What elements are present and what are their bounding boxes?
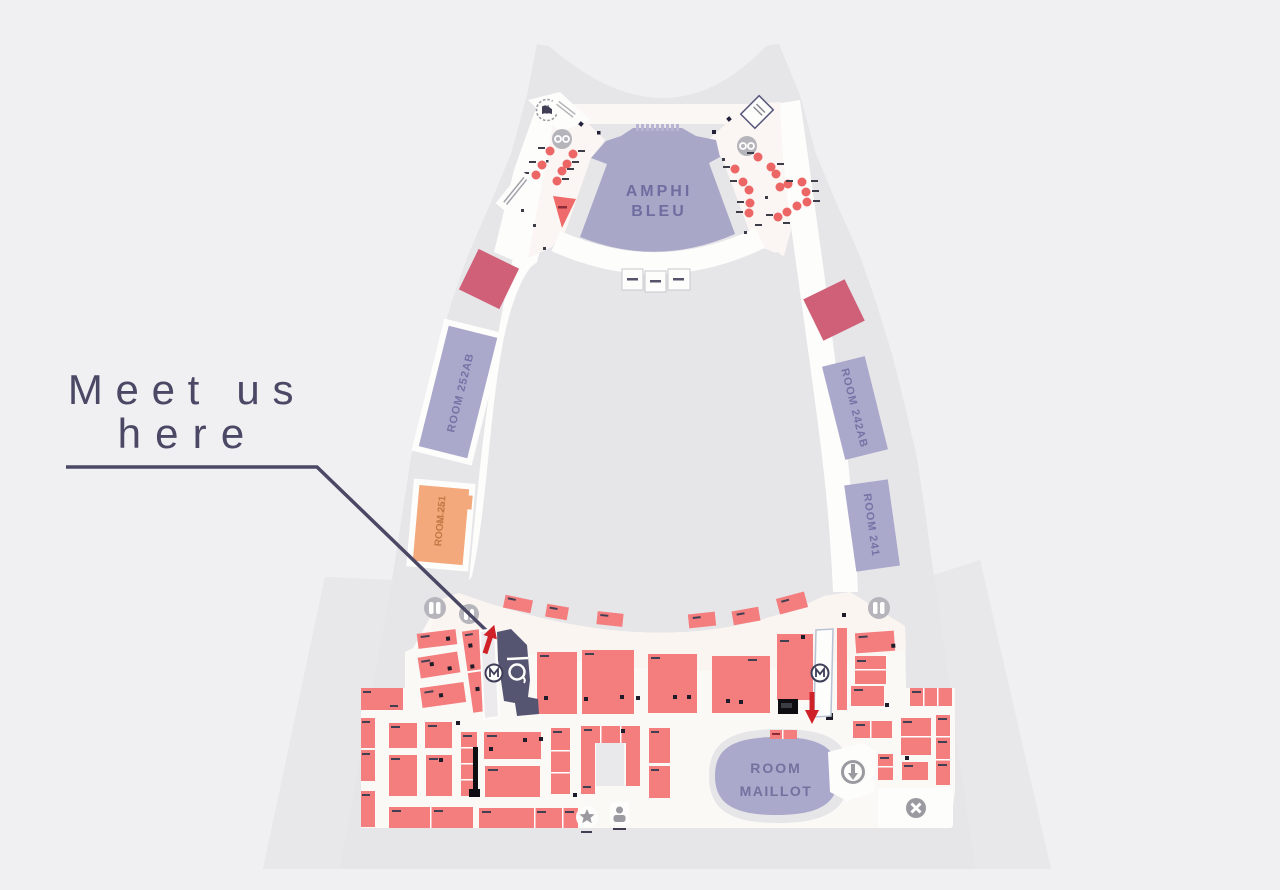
svg-text:MAILLOT: MAILLOT [740, 783, 813, 799]
svg-text:Meet us: Meet us [68, 366, 306, 413]
svg-text:here: here [118, 410, 259, 457]
svg-text:AMPHI: AMPHI [626, 183, 693, 200]
svg-text:ROOM: ROOM [750, 760, 802, 776]
svg-text:BLEU: BLEU [631, 203, 687, 220]
